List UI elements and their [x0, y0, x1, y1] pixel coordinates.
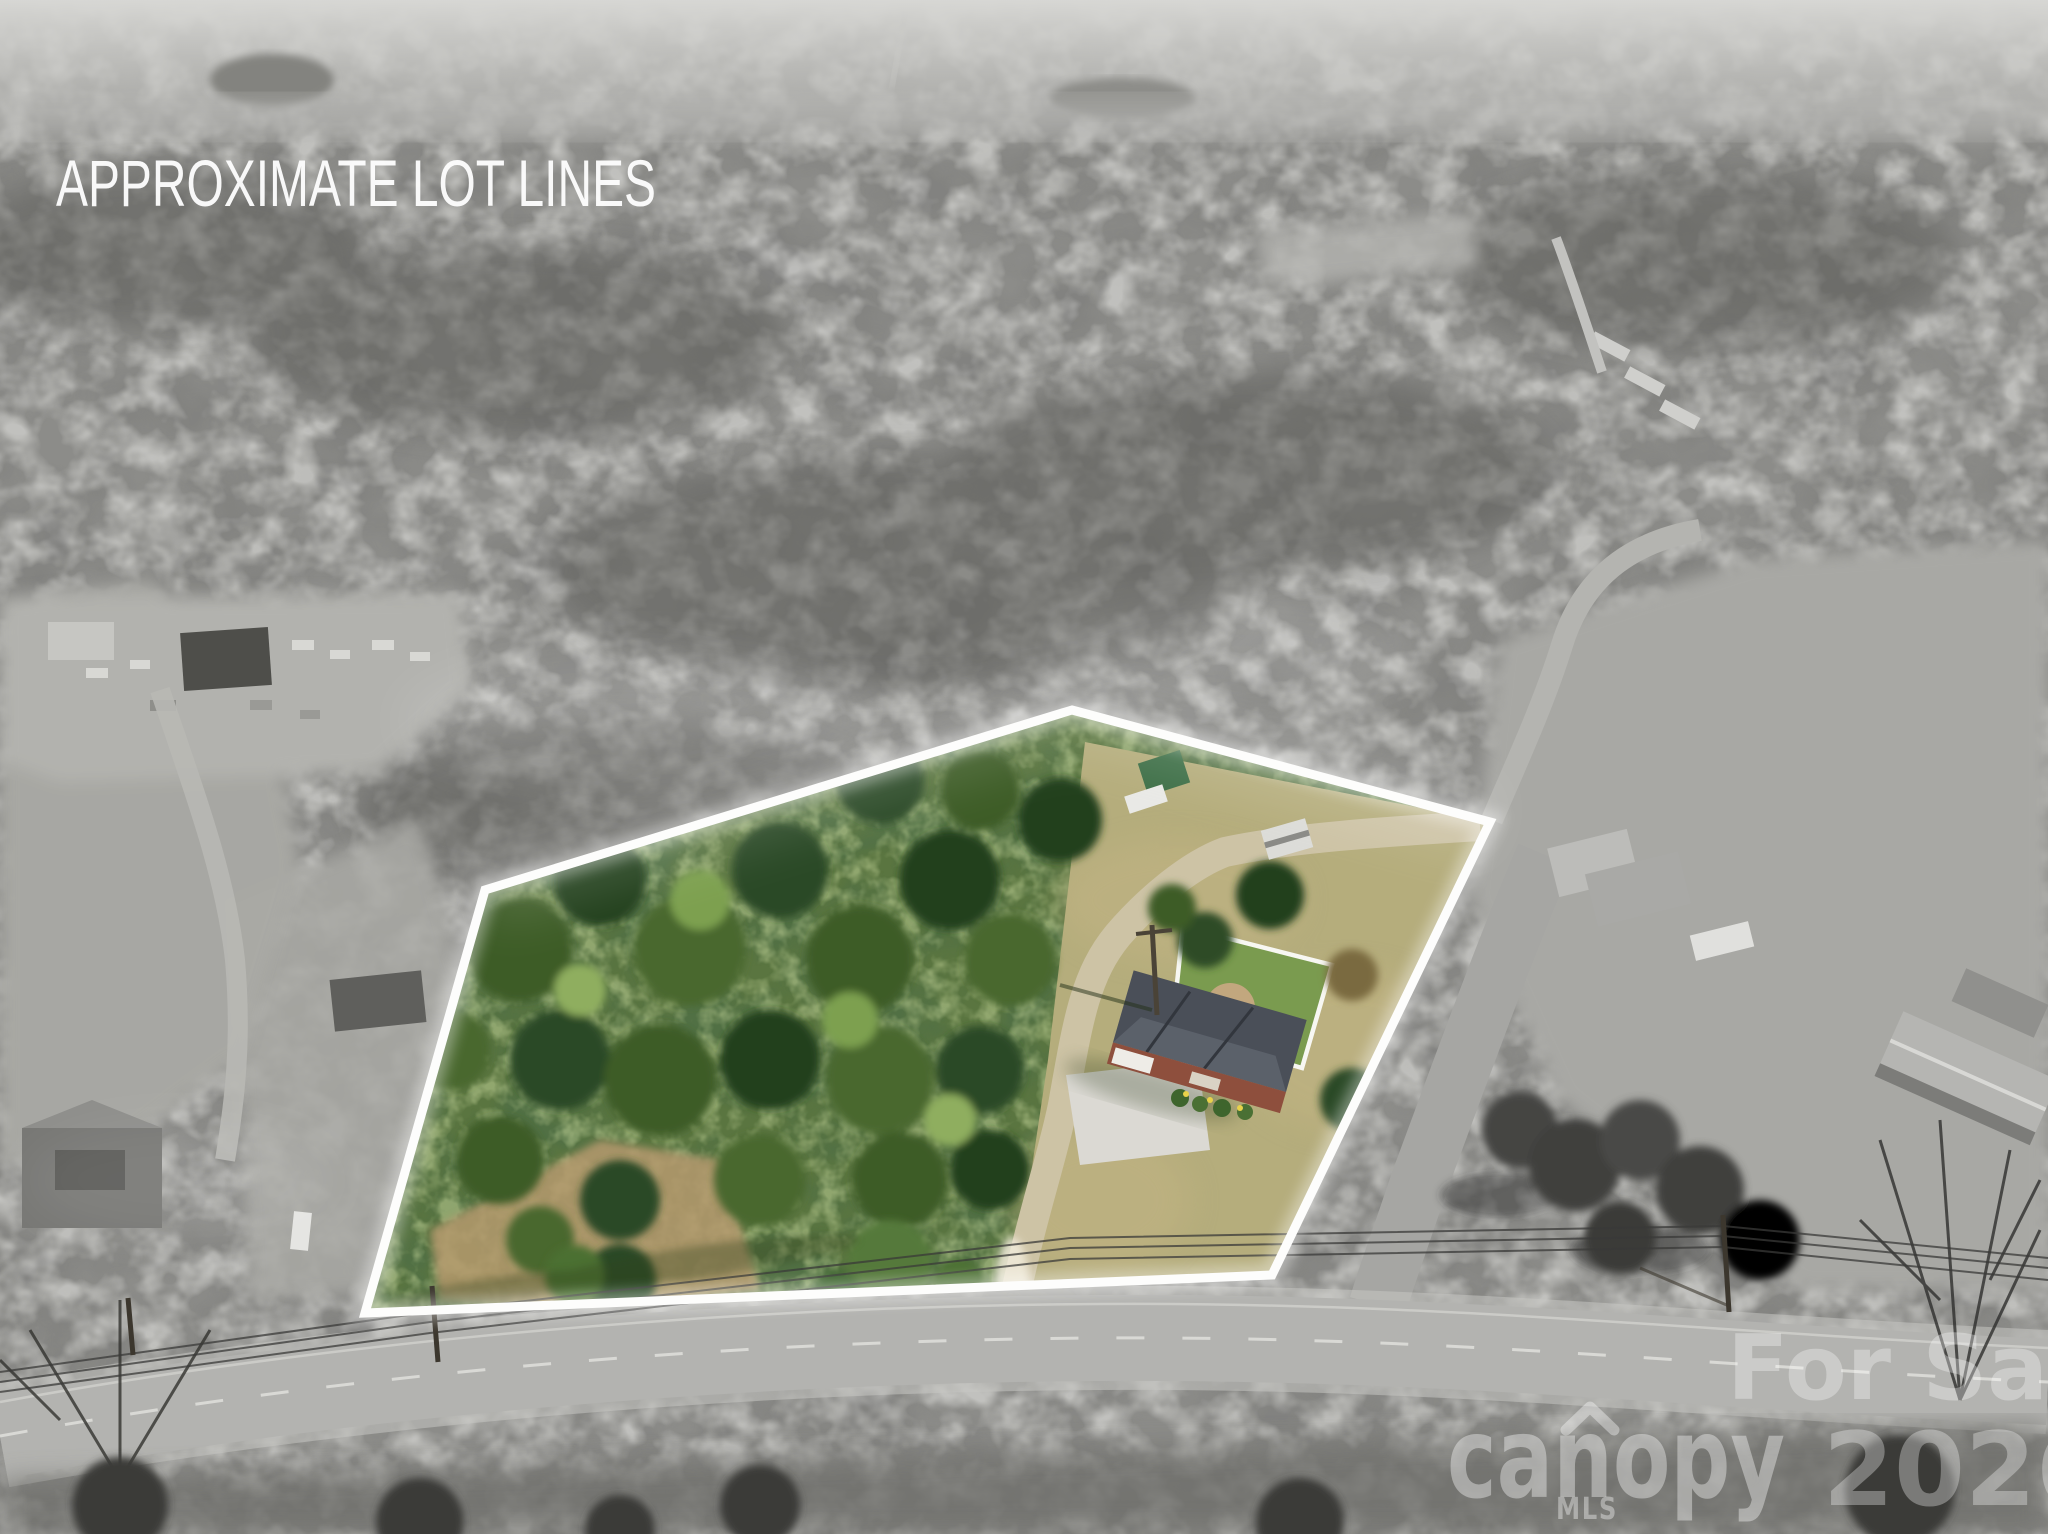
aerial-photo: APPROXIMATE LOT LINES For Sale 2026 cano…	[0, 0, 2048, 1534]
horizon-band	[0, 96, 2048, 138]
watermark-year: 2026	[1823, 1411, 2048, 1530]
photo-canvas: APPROXIMATE LOT LINES For Sale 2026 cano…	[0, 0, 2048, 1534]
light-barn	[48, 622, 114, 660]
watermark-brand-sub: MLS	[1556, 1492, 1618, 1527]
neighbor-shed	[330, 970, 427, 1031]
lot-lines-title: APPROXIMATE LOT LINES	[56, 146, 656, 220]
dark-barn	[180, 627, 272, 691]
